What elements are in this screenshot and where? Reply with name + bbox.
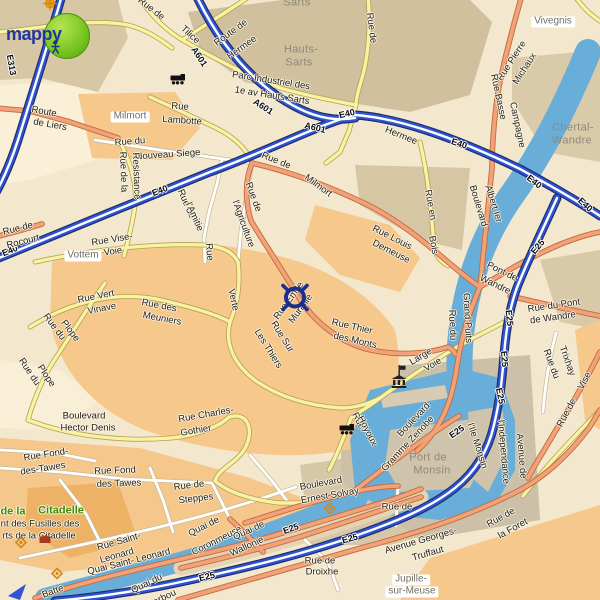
location-marker-icon [277,280,313,321]
map-canvas[interactable]: E313E40E40E40A601A601A601E40E40E40E25E25… [0,0,600,600]
mappy-logo[interactable]: mappy [2,4,102,62]
pedestrian-icon [50,40,61,54]
